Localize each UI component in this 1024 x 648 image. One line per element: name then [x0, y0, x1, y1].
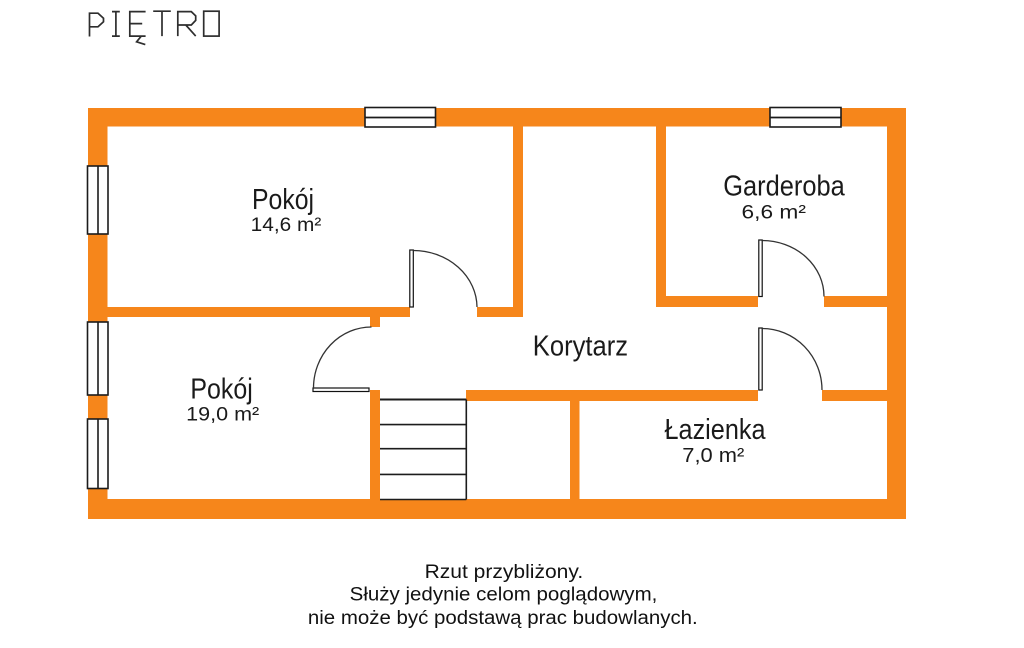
svg-text:6,6 m²: 6,6 m²: [742, 201, 807, 223]
svg-text:Garderoba: Garderoba: [723, 171, 845, 203]
svg-text:14,6 m²: 14,6 m²: [251, 215, 322, 236]
svg-text:nie może być podstawą prac bud: nie może być podstawą prac budowlanych.: [308, 608, 698, 629]
svg-text:Rzut przybliżony.: Rzut przybliżony.: [425, 562, 584, 583]
svg-text:19,0 m²: 19,0 m²: [186, 404, 260, 425]
svg-text:Korytarz: Korytarz: [533, 330, 628, 362]
svg-text:7,0 m²: 7,0 m²: [682, 445, 744, 467]
svg-text:Służy jedynie celom poglądowym: Służy jedynie celom poglądowym,: [350, 584, 658, 605]
svg-text:Pokój: Pokój: [252, 184, 314, 216]
svg-text:Pokój: Pokój: [190, 373, 252, 405]
svg-text:Łazienka: Łazienka: [665, 414, 767, 446]
